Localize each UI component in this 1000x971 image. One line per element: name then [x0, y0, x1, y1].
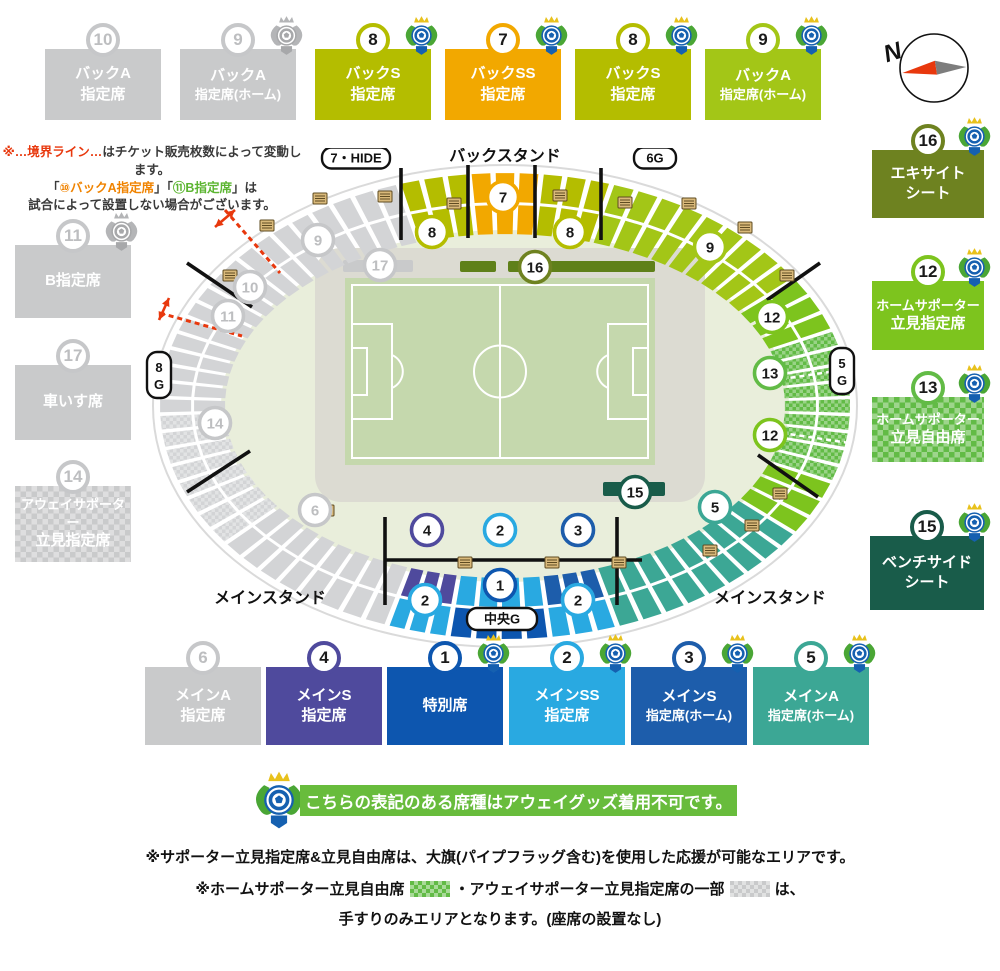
note-flags: ※サポーター立見指定席&立見自由席は、大旗(パイプフラッグ含む)を使用した応援が… [0, 846, 1000, 867]
seat-box-2: メインSS指定席2 [509, 641, 625, 745]
seat-label: 指定席 [544, 706, 589, 726]
seat-number-10: 10 [86, 23, 120, 57]
seat-label: バックS [345, 64, 400, 84]
svg-text:G: G [837, 373, 847, 388]
seat-label: 指定席 [610, 85, 655, 105]
seat-label: 指定席 [80, 85, 125, 105]
seat-label: 指定席(ホーム) [646, 707, 732, 725]
seat-box-10: バックA指定席10 [45, 23, 161, 120]
stand-block [194, 386, 226, 399]
seat-box-9: バックA指定席(ホーム)9 [705, 23, 821, 120]
boundary-note-segment: ⑪B指定席 [173, 181, 232, 195]
stairs-icon [447, 198, 461, 209]
boundary-note-segment: ⑩バックA指定席 [60, 181, 155, 195]
seat-box-body: エキサイトシート [872, 150, 984, 218]
club-crest-icon [663, 15, 700, 56]
svg-text:6G: 6G [646, 151, 663, 166]
seat-label: 車いす席 [43, 392, 103, 412]
boundary-note-line: 「⑩バックA指定席」「⑪B指定席」は [0, 180, 304, 198]
seat-box-body: バックS指定席 [315, 49, 431, 120]
seat-strip [460, 261, 496, 272]
boundary-note: ※…境界ライン…はチケット販売枚数によって変動します。「⑩バックA指定席」「⑪B… [0, 144, 304, 215]
seat-box-body: ベンチサイドシート [870, 536, 984, 610]
compass-north-label: N [880, 37, 905, 68]
seat-label: バックA [210, 66, 266, 86]
boundary-note-segment: 」「 [154, 181, 173, 195]
gate-label: 6G [634, 148, 676, 169]
map-marker-13: 13 [755, 358, 786, 389]
boundary-note-segment: はチケット販売枚数によって変動します。 [102, 145, 301, 177]
club-crest-icon [793, 15, 830, 56]
seat-box-14: アウェイサポーター立見指定席14 [15, 460, 131, 562]
legend-swatch-standFree [410, 881, 450, 897]
map-marker-10: 10 [235, 272, 266, 303]
seat-label: バックS [605, 64, 660, 84]
seat-box-5: メインA指定席(ホーム)5 [753, 641, 869, 745]
map-marker-2: 2 [485, 515, 516, 546]
gate-label: 中央G [467, 608, 537, 630]
seat-box-body: バックA指定席(ホーム) [180, 49, 296, 120]
map-marker-17: 17 [365, 250, 396, 281]
seat-label: 指定席 [301, 706, 346, 726]
club-crest-icon [403, 15, 440, 56]
banner-text: こちらの表記のある席種はアウェイグッズ着用不可です。 [300, 785, 737, 816]
stand-block [523, 577, 543, 607]
svg-text:8: 8 [566, 225, 574, 242]
club-crest-icon [956, 116, 993, 157]
seat-box-body: 特別席 [387, 667, 503, 745]
seat-label: 立見自由席 [890, 428, 965, 448]
map-marker-16: 16 [520, 252, 551, 283]
seat-box-11: B指定席11 [15, 219, 131, 318]
stadium-map: 7・HIDE6G中央G8G5Gバックスタンドメインスタンドメインスタンド9101… [145, 148, 865, 648]
boundary-note-segment: 」は [232, 181, 257, 195]
svg-text:1: 1 [496, 578, 504, 595]
stairs-icon [703, 545, 717, 556]
map-marker-12: 12 [755, 420, 786, 451]
seat-label: メインS [661, 687, 716, 707]
boundary-note-line: 試合によって設置しない場合がございます。 [0, 197, 304, 215]
seat-box-body: ホームサポーター立見指定席 [872, 281, 984, 350]
boundary-note-segment: 試合によって設置しない場合がございます。 [28, 198, 276, 212]
svg-text:5: 5 [711, 500, 719, 517]
note-text: ・アウェイサポーター立見指定席の一部 [455, 878, 725, 899]
seat-label: 特別席 [422, 696, 467, 716]
seat-number-8: 8 [356, 23, 390, 57]
seat-label: メインS [296, 686, 351, 706]
seat-number-12: 12 [911, 255, 945, 289]
seat-box-9: バックA指定席(ホーム)9 [180, 23, 296, 120]
seat-box-body: バックA指定席(ホーム) [705, 49, 821, 120]
boundary-note-line: ※…境界ライン…はチケット販売枚数によって変動します。 [0, 144, 304, 180]
svg-text:16: 16 [527, 260, 544, 277]
seat-box-8: バックS指定席8 [575, 23, 691, 120]
seat-label: アウェイサポーター [15, 496, 131, 531]
map-marker-7: 7 [488, 182, 519, 213]
stand-name-label: メインスタンド [714, 589, 826, 607]
seat-label: シート [905, 184, 950, 204]
seat-box-body: B指定席 [15, 245, 131, 318]
map-marker-3: 3 [563, 515, 594, 546]
stand-block [517, 205, 535, 235]
stairs-icon [545, 557, 559, 568]
map-marker-8: 8 [555, 217, 586, 248]
seat-box-17: 車いす席17 [15, 339, 131, 440]
seat-number-13: 13 [911, 371, 945, 405]
note-handrail-2: 手すりのみエリアとなります。(座席の設置なし) [0, 908, 1000, 929]
stairs-icon [313, 193, 327, 204]
seat-box-1: 特別席1 [387, 641, 503, 745]
seat-box-8: バックS指定席8 [315, 23, 431, 120]
map-marker-9: 9 [303, 225, 334, 256]
seat-label: エキサイト [890, 164, 965, 184]
seat-number-16: 16 [911, 124, 945, 158]
seat-box-16: エキサイトシート16 [872, 124, 984, 218]
seat-box-body: 車いす席 [15, 365, 131, 440]
stand-block [160, 399, 191, 412]
seat-number-17: 17 [56, 339, 90, 373]
seat-label: 立見指定席 [890, 314, 965, 334]
map-marker-12: 12 [757, 302, 788, 333]
stand-block [475, 205, 493, 235]
note-text: ※ホームサポーター立見自由席 [195, 878, 404, 899]
seat-label: ホームサポーター [876, 297, 980, 315]
stairs-icon [618, 197, 632, 208]
svg-text:13: 13 [762, 366, 779, 383]
svg-text:7: 7 [499, 190, 507, 207]
seat-box-body: メインA指定席(ホーム) [753, 667, 869, 745]
seat-label: 指定席(ホーム) [768, 707, 854, 725]
note-text: は、 [775, 878, 805, 899]
club-crest-icon [956, 363, 993, 404]
svg-text:G: G [154, 377, 164, 392]
stand-block [424, 177, 448, 208]
map-marker-5: 5 [700, 492, 731, 523]
stand-block [196, 372, 229, 387]
svg-text:8: 8 [155, 360, 162, 375]
note-handrail-1: ※ホームサポーター立見自由席・アウェイサポーター立見指定席の一部は、 [0, 878, 1000, 899]
seat-box-body: メインA指定席 [145, 667, 261, 745]
stairs-icon [773, 488, 787, 499]
stairs-icon [260, 220, 274, 231]
club-crest-icon [268, 15, 305, 56]
stairs-icon [612, 557, 626, 568]
stand-block [456, 576, 477, 606]
map-marker-1: 1 [485, 570, 516, 601]
seat-box-body: メインS指定席 [266, 667, 382, 745]
boundary-note-segment: ※…境界ライン… [3, 145, 103, 159]
svg-text:2: 2 [574, 593, 582, 610]
stairs-icon [458, 557, 472, 568]
seat-box-4: メインS指定席4 [266, 641, 382, 745]
map-marker-8: 8 [417, 217, 448, 248]
seat-label: ホームサポーター [876, 411, 980, 429]
seat-box-6: メインA指定席6 [145, 641, 261, 745]
seat-label: 指定席 [480, 85, 525, 105]
svg-text:3: 3 [574, 523, 582, 540]
seat-label: メインA [175, 686, 231, 706]
stairs-icon [682, 198, 696, 209]
svg-text:6: 6 [311, 503, 319, 520]
stand-block [453, 206, 473, 236]
map-marker-14: 14 [200, 408, 231, 439]
stand-block [544, 575, 564, 605]
seat-label: 立見指定席 [35, 531, 110, 551]
map-marker-2: 2 [410, 585, 441, 616]
seat-box-body: ホームサポーター立見自由席 [872, 397, 984, 462]
svg-text:8: 8 [428, 225, 436, 242]
map-marker-15: 15 [620, 477, 651, 508]
stairs-icon [780, 270, 794, 281]
seat-box-13: ホームサポーター立見自由席13 [872, 371, 984, 462]
seat-box-12: ホームサポーター立見指定席12 [872, 255, 984, 350]
seat-number-11: 11 [56, 219, 90, 253]
seat-number-9: 9 [746, 23, 780, 57]
seat-label: 指定席 [180, 706, 225, 726]
seat-label: バックSS [470, 64, 535, 84]
svg-text:9: 9 [314, 233, 322, 250]
seat-label: バックA [735, 66, 791, 86]
club-crest-icon [956, 502, 993, 543]
svg-text:12: 12 [764, 310, 781, 327]
stand-block [583, 180, 609, 211]
club-crest-icon [252, 770, 306, 830]
seat-label: メインSS [534, 686, 599, 706]
svg-text:17: 17 [372, 258, 389, 275]
stand-name-label: バックスタンド [449, 148, 561, 165]
stairs-icon [745, 520, 759, 531]
seat-number-7: 7 [486, 23, 520, 57]
club-crest-icon [533, 15, 570, 56]
seat-box-body: バックSS指定席 [445, 49, 561, 120]
stadium-seating-page: { "colors": { "gray":"#c9cacb","blockGra… [0, 0, 1000, 971]
stairs-icon [738, 222, 752, 233]
map-marker-11: 11 [213, 301, 244, 332]
gate-label: 7・HIDE [322, 148, 390, 169]
seat-box-body: バックA指定席 [45, 49, 161, 120]
stand-block [401, 180, 427, 211]
seat-box-body: バックS指定席 [575, 49, 691, 120]
seat-label: バックA [75, 64, 131, 84]
svg-text:12: 12 [762, 428, 779, 445]
svg-text:11: 11 [220, 309, 236, 326]
svg-text:2: 2 [421, 593, 429, 610]
svg-text:14: 14 [207, 416, 224, 433]
map-marker-2: 2 [563, 585, 594, 616]
gate-label: 8G [147, 352, 171, 398]
seat-box-body: アウェイサポーター立見指定席 [15, 486, 131, 562]
seat-box-15: ベンチサイドシート15 [870, 510, 984, 610]
seat-box-3: メインS指定席(ホーム)3 [631, 641, 747, 745]
seat-number-9: 9 [221, 23, 255, 57]
seat-number-15: 15 [910, 510, 944, 544]
svg-text:9: 9 [706, 240, 714, 257]
stairs-icon [553, 190, 567, 201]
seat-label: メインA [783, 687, 839, 707]
boundary-note-segment: 「 [47, 181, 60, 195]
seat-label: B指定席 [45, 271, 101, 291]
map-marker-9: 9 [695, 232, 726, 263]
svg-text:中央G: 中央G [484, 612, 520, 627]
seat-box-body: メインSS指定席 [509, 667, 625, 745]
gate-label: 5G [830, 348, 854, 394]
seat-label: 指定席(ホーム) [720, 86, 806, 104]
seat-label: 指定席 [350, 85, 395, 105]
svg-text:2: 2 [496, 523, 504, 540]
seat-label: 指定席(ホーム) [195, 86, 281, 104]
legend-swatch-gray [730, 881, 770, 897]
seat-number-14: 14 [56, 460, 90, 494]
seat-label: ベンチサイド [882, 553, 972, 573]
seat-label: シート [904, 573, 949, 593]
away-goods-banner: こちらの表記のある席種はアウェイグッズ着用不可です。 [252, 770, 772, 834]
stairs-icon [378, 191, 392, 202]
club-crest-icon [103, 211, 140, 252]
compass: N [872, 23, 990, 107]
seat-box-7: バックSS指定席7 [445, 23, 561, 120]
svg-text:5: 5 [838, 356, 845, 371]
svg-text:10: 10 [242, 280, 259, 297]
seat-box-body: メインS指定席(ホーム) [631, 667, 747, 745]
seat-number-8: 8 [616, 23, 650, 57]
svg-text:7・HIDE: 7・HIDE [330, 151, 382, 166]
svg-text:15: 15 [627, 485, 644, 502]
svg-text:4: 4 [423, 523, 432, 540]
map-marker-6: 6 [300, 495, 331, 526]
map-marker-4: 4 [412, 515, 443, 546]
stand-name-label: メインスタンド [214, 589, 326, 607]
club-crest-icon [956, 247, 993, 288]
